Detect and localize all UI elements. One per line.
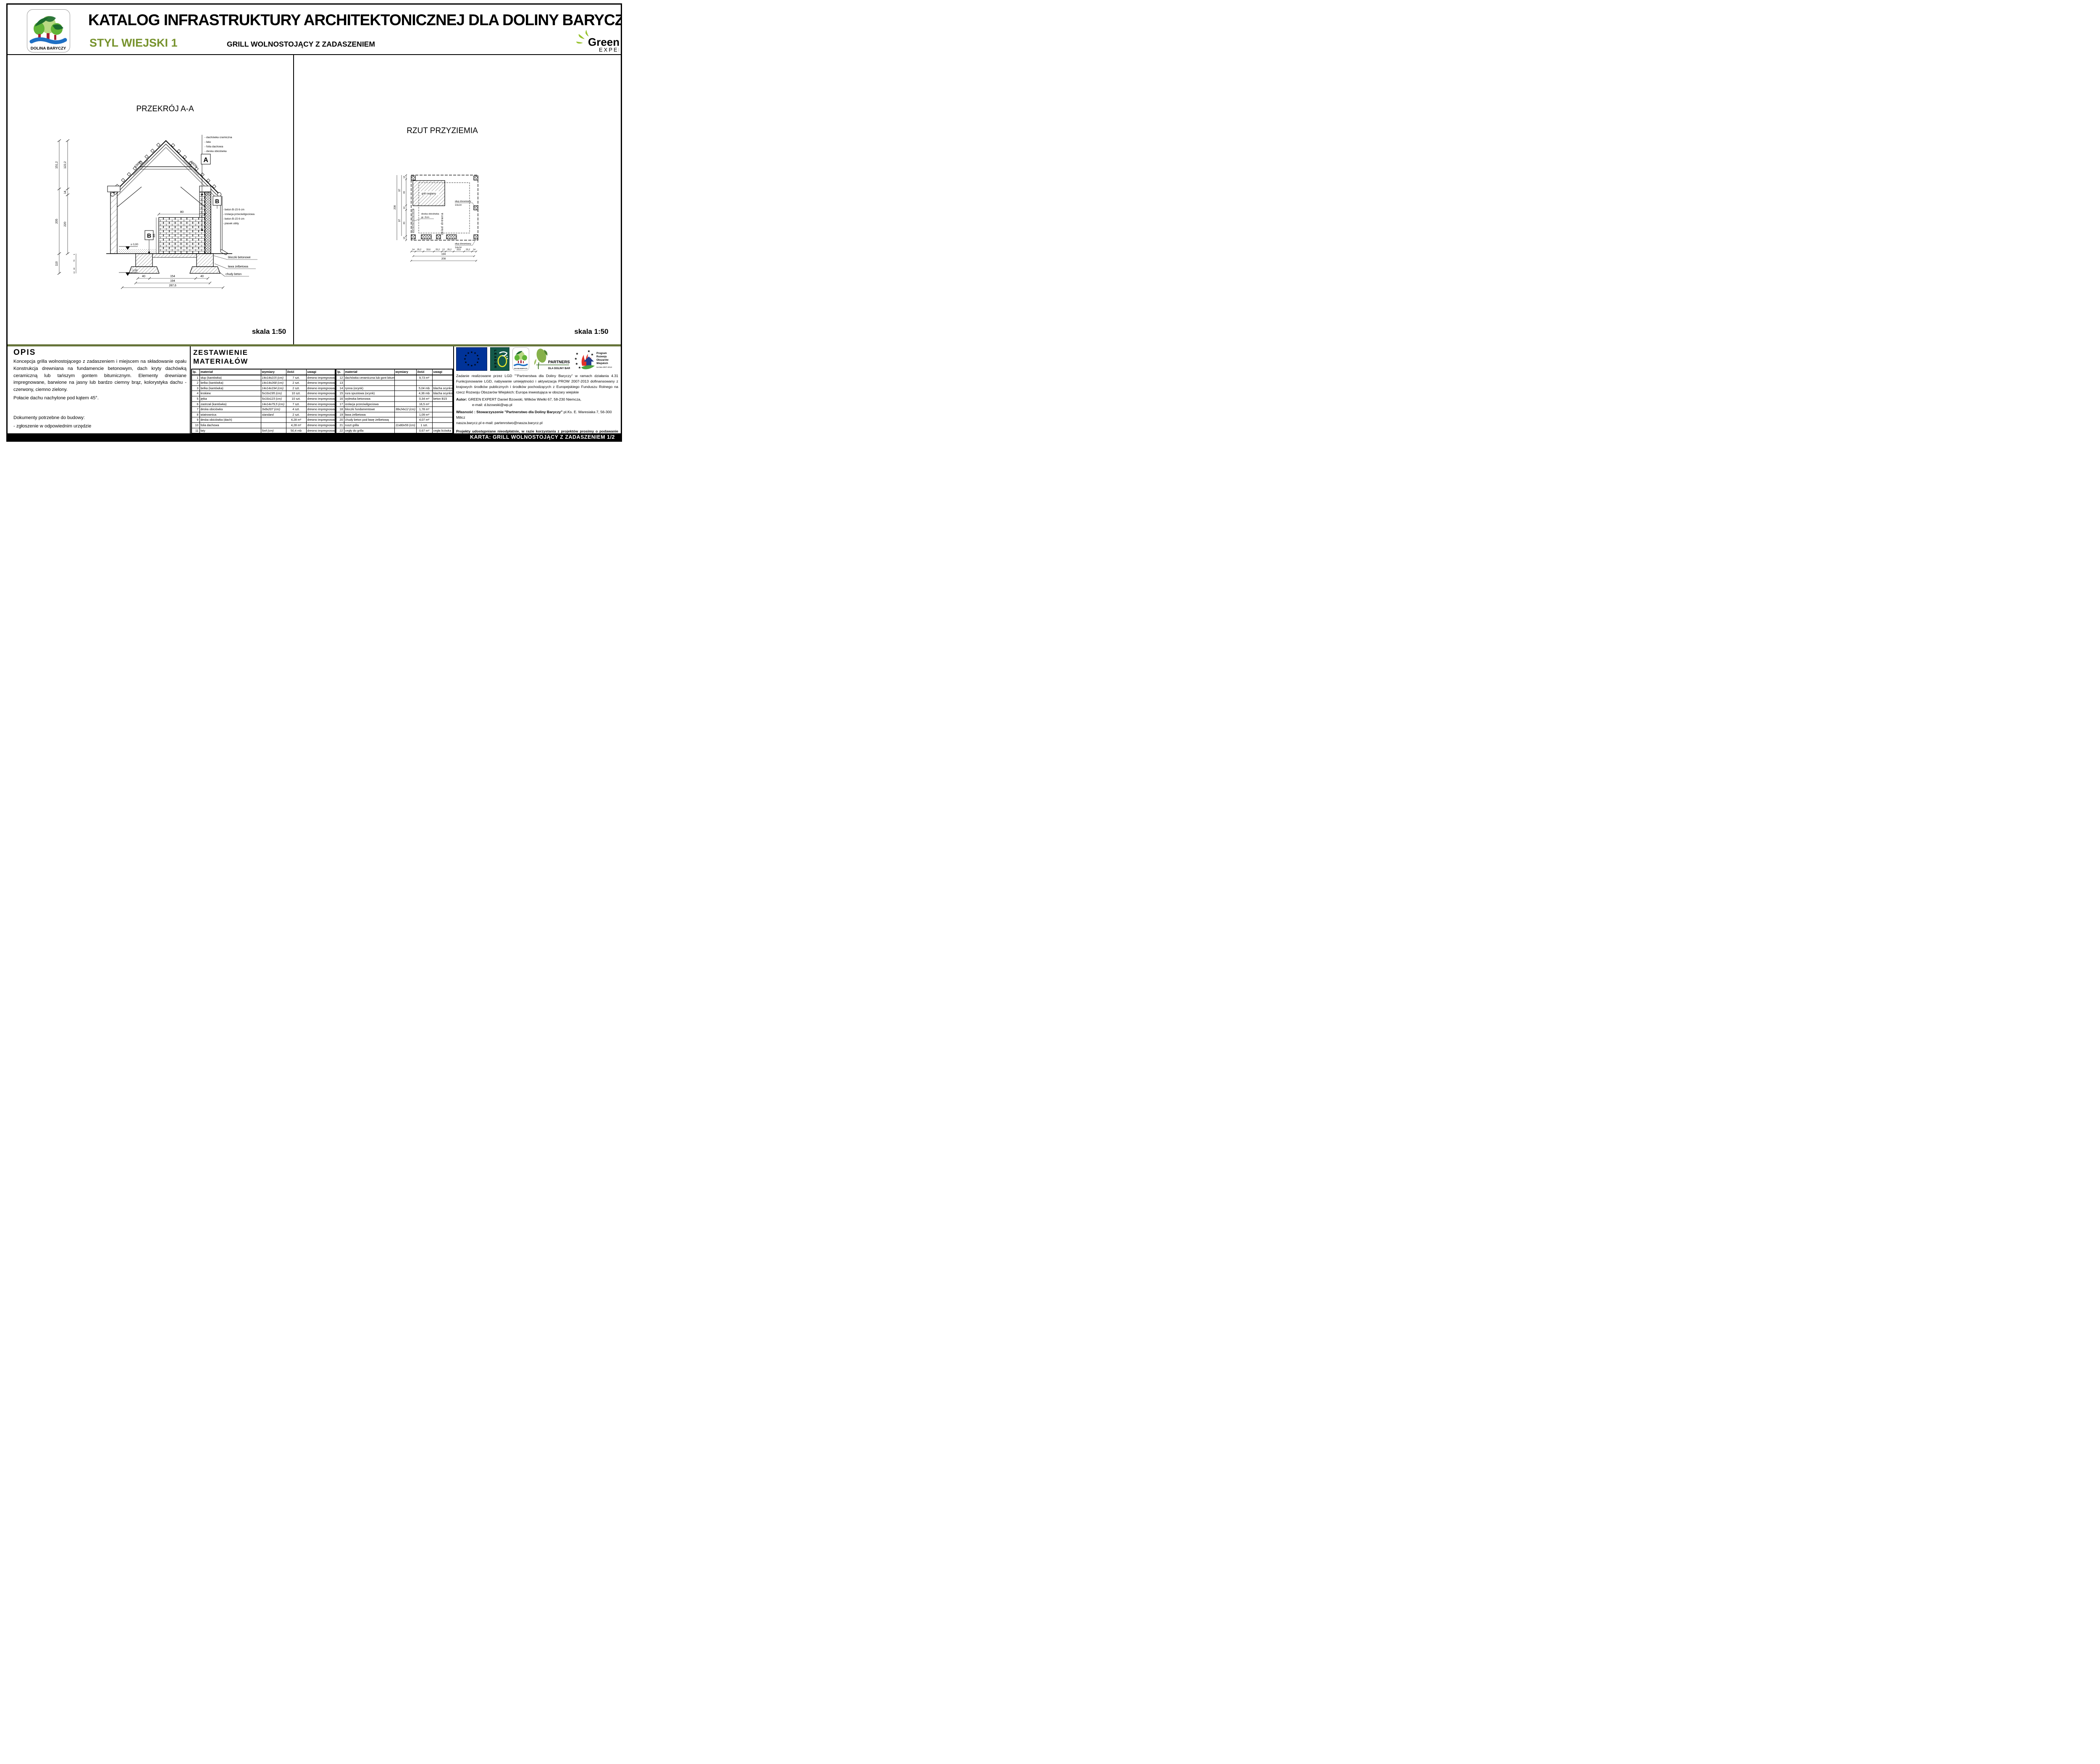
material-row: 13 — [336, 380, 453, 386]
autor-text: GREEN EXPERT Daniel Bzowski, Wilków Wiel… — [468, 397, 581, 401]
table-header-row: lp. materiał wymiary ilość uwagi — [192, 369, 335, 375]
autor-email: e-mail: d.bzowski@wp.pl — [472, 402, 618, 408]
material-cell: 10 szt. — [286, 391, 306, 396]
material-cell: 16 — [336, 396, 344, 401]
dim-label: 97 — [399, 219, 401, 222]
note-a: - deska obiciówka — [205, 150, 227, 153]
material-cell: bloczki fundamentowe — [344, 407, 394, 412]
material-row: 18bloczki fundamentowe38x24x12 (cm)1,78 … — [336, 407, 453, 412]
material-cell: blacha ocynkowana — [432, 385, 453, 391]
material-cell: cegła licówka — [432, 428, 453, 433]
material-cell: 16,5 m² — [416, 401, 432, 407]
plan-drawing: grill ceglany deska obiciówka gr. 2cm sk… — [379, 165, 564, 291]
material-row: 21ruszt grilla11x80x59 (cm)1 szt. — [336, 422, 453, 428]
dim-label: 83 — [403, 222, 406, 224]
svg-text:★: ★ — [587, 349, 590, 353]
material-cell: wylewka betonowa — [344, 396, 394, 401]
material-cell: 14x14x79,5 (cm) — [261, 401, 286, 407]
material-cell: łaty — [199, 428, 261, 433]
material-cell: chudy beton pod ławę żelbetową — [344, 417, 394, 423]
material-cell: 38x24x12 (cm) — [394, 407, 416, 412]
info-zadanie: Zadanie realizowane przez LGD ""Partners… — [456, 373, 618, 395]
material-row: 4krokiew5x16x195 (cm)10 szt.drewno impre… — [192, 391, 335, 396]
opis-divider — [190, 346, 191, 434]
material-row: 2belka (kantówka)14x14x268 (cm)2 szt.dre… — [192, 380, 335, 386]
label-deska: deska obiciówka — [421, 213, 439, 215]
label-sklad: skład drewna — [441, 212, 444, 235]
material-row: 15rura spustowa (ocynk)4,36 mbblacha ocy… — [336, 391, 453, 396]
material-cell: 5,04 mb — [416, 385, 432, 391]
dim-label: 194 — [170, 280, 175, 283]
material-cell: drewno impregnowane — [306, 407, 335, 412]
col-header: wymiary — [394, 369, 416, 375]
material-cell — [432, 417, 453, 423]
leader-text: LEADER — [493, 350, 497, 369]
material-cell: 4,36 mb — [416, 391, 432, 396]
dim-label: 14 — [403, 176, 406, 178]
dim-label: 25,2 — [417, 249, 421, 251]
material-cell: 4 szt. — [286, 407, 306, 412]
note-b: - beton B-15 6 cm — [223, 218, 244, 220]
label-grill: grill ceglany — [422, 192, 436, 195]
material-cell: deska obiciówka — [199, 407, 261, 412]
materials-table-left: lp. materiał wymiary ilość uwagi 1słup (… — [191, 369, 335, 434]
note-b: - beton B-15 6 cm — [223, 208, 244, 211]
dim-label: 70 — [73, 259, 75, 262]
header-divider — [8, 54, 621, 55]
material-row: 22cegły do grilla0,67 m³cegła licówka — [336, 428, 453, 433]
material-cell: ruszt grilla — [344, 422, 394, 428]
material-cell: 0,67 m³ — [416, 428, 432, 433]
material-row: 5jętka5x16x123 (cm)10 szt.drewno impregn… — [192, 396, 335, 401]
partner-logos: ★★★ ★★★ ★★★ ★★★ LEADER DOLINA BARYCZY — [456, 347, 613, 371]
svg-text:★: ★ — [470, 351, 473, 354]
dim-label: 83 — [403, 191, 406, 194]
prow-text: Wiejskich — [596, 362, 608, 365]
plan-title: RZUT PRZYZIEMIA — [402, 126, 482, 136]
leaf-rays-icon — [576, 30, 589, 44]
material-cell: 5 — [192, 396, 199, 401]
material-cell — [394, 428, 416, 433]
note-b: - izolacja przeciwilgociowa — [223, 213, 255, 216]
material-cell: drewno impregnowane — [306, 391, 335, 396]
autor-label: Autor: — [456, 397, 467, 401]
svg-text:★: ★ — [574, 357, 577, 361]
partnerstwo-logo: PARTNERSTWO DLA DOLINY BARYCZY — [532, 347, 570, 371]
dim-label: 85 — [152, 234, 156, 237]
material-cell: wiatrownica — [199, 412, 261, 417]
material-cell: drewno impregnowane — [306, 412, 335, 417]
material-cell: 7 szt. — [286, 375, 306, 380]
material-cell: zastrzał (kantówka) — [199, 401, 261, 407]
material-cell: 10 — [192, 422, 199, 428]
col-header: uwagi — [432, 369, 453, 375]
svg-text:★: ★ — [575, 362, 578, 366]
footer-bar: KARTA: GRILL WOLNOSTOJĄCY Z ZADASZENIEM … — [8, 433, 621, 440]
material-cell: 2 — [192, 380, 199, 386]
prow-text: Program — [596, 352, 607, 355]
material-cell — [394, 380, 416, 386]
dim-label: 14 — [64, 191, 67, 194]
dim-label: 208 — [394, 205, 396, 210]
olive-band — [8, 344, 621, 346]
label-lawa: ława żelbetowa — [228, 265, 248, 268]
dim-label: 14 — [403, 207, 406, 209]
dolina-baryczy-small-logo: DOLINA BARYCZY — [512, 347, 529, 371]
dim-label: 40 — [142, 275, 145, 278]
brand-expert: EXPERT — [599, 47, 619, 53]
col-header: materiał — [344, 369, 394, 375]
scale-label-right: skala 1:50 — [564, 328, 619, 336]
section-marker-a: A — [203, 157, 208, 164]
material-cell: 18 — [336, 407, 344, 412]
material-cell: 3x8x207 (cm) — [261, 407, 286, 412]
material-cell — [432, 412, 453, 417]
material-cell — [432, 422, 453, 428]
partner-line1: PARTNERSTWO — [548, 360, 570, 364]
material-cell: rura spustowa (ocynk) — [344, 391, 394, 396]
material-cell: 4,28 m² — [286, 422, 306, 428]
dim-label: 110 — [55, 261, 58, 266]
material-row: 1słup (kantówka)14x14x215 (cm)7 szt.drew… — [192, 375, 335, 380]
material-cell: 4 — [192, 391, 199, 396]
material-cell: rynna (ocynk) — [344, 385, 394, 391]
material-cell: krokiew — [199, 391, 261, 396]
material-cell: belka (kantówka) — [199, 380, 261, 386]
dim-label: 208 — [441, 257, 446, 260]
dim-label: 33,6 — [426, 249, 430, 251]
materials-table-right: lp. materiał wymiary ilość uwagi 12dachó… — [336, 369, 452, 434]
material-cell: drewno impregnowane — [306, 380, 335, 386]
material-cell: drewno impregnowane — [306, 385, 335, 391]
dim-label: 40 — [200, 275, 204, 278]
material-cell — [432, 380, 453, 386]
roof-tiles — [115, 143, 216, 188]
material-cell — [416, 380, 432, 386]
col-header: lp. — [192, 369, 199, 375]
info-divider — [453, 346, 454, 434]
material-row: 12dachówka ceramiczna lub gont bitumiczn… — [336, 375, 453, 380]
material-cell: 8 — [192, 412, 199, 417]
material-cell: 12 — [336, 375, 344, 380]
svg-text:★: ★ — [578, 366, 581, 370]
material-row: 3belka (kantówka)14x14x194 (cm)2 szt.dre… — [192, 385, 335, 391]
svg-text:★: ★ — [477, 357, 480, 361]
material-cell: 19 — [336, 412, 344, 417]
note-a: - łata — [205, 141, 211, 144]
material-cell: 9,73 m² — [416, 375, 432, 380]
section-drawing: 100% 100% A - dachówka crami — [52, 131, 287, 295]
material-cell: 10 szt. — [286, 396, 306, 401]
opis-heading: OPIS — [13, 348, 36, 357]
material-row: 10folia dachowa4,28 m²drewno impregnowan… — [192, 422, 335, 428]
section-marker-b: B — [215, 198, 219, 204]
dim-label: 122,2 — [64, 161, 67, 169]
materials-heading-line1: ZESTAWIENIE — [193, 348, 248, 357]
material-cell: 20 — [336, 417, 344, 423]
material-cell: 50,4 mb — [286, 428, 306, 433]
prow-text: Obszarów — [596, 359, 609, 362]
material-row: 8wiatrownicastandard2 szt.drewno impregn… — [192, 412, 335, 417]
material-cell: drewno impregnowane — [306, 422, 335, 428]
material-cell: blacha ocynkowana — [432, 391, 453, 396]
page-title: KATALOG INFRASTRUKTURY ARCHITEKTONICZNEJ… — [88, 11, 622, 29]
material-cell: 5x16x123 (cm) — [261, 396, 286, 401]
materials-heading: ZESTAWIENIE MATERIAŁÓW — [193, 348, 248, 366]
material-cell: 6 — [192, 401, 199, 407]
svg-text:★: ★ — [470, 364, 473, 367]
opis-para2: Połacie dachu nachylone pod kątem 45°. — [13, 395, 186, 402]
note-a: - dachówka cramiczna — [205, 136, 232, 139]
material-cell: 5x4 (cm) — [261, 428, 286, 433]
web-line: nasza.barycz.pl e-mail: partenrstwo@nasz… — [456, 420, 618, 426]
material-cell: jętka — [199, 396, 261, 401]
prow-years: na lata 2007-2013 — [596, 366, 612, 368]
material-cell: beton B15 — [432, 396, 453, 401]
material-cell: 9 — [192, 417, 199, 423]
material-cell: 15 — [336, 391, 344, 396]
material-cell — [394, 391, 416, 396]
opis-text: Koncepcja grilla wolnostojącego z zadasz… — [13, 358, 186, 431]
section-title: PRZEKRÓJ A-A — [125, 105, 205, 114]
material-cell: 7 — [192, 407, 199, 412]
dim-label: 151,2 — [55, 161, 58, 169]
material-cell: 14x14x215 (cm) — [261, 375, 286, 380]
dolina-small-caption: DOLINA BARYCZY — [514, 368, 528, 370]
eu-flag-icon: ★★★ ★★★ ★★★ ★★★ — [456, 347, 487, 371]
material-row: 6zastrzał (kantówka)14x14x79,5 (cm)7 szt… — [192, 401, 335, 407]
partner-line2: DLA DOLINY BARYCZY — [548, 367, 570, 370]
material-cell — [432, 401, 453, 407]
dim-label: 220 — [64, 222, 67, 227]
dim-label: 14 — [403, 237, 406, 239]
dolina-baryczy-logo: DOLINA BARYCZY — [26, 9, 71, 53]
dim-label: 97 — [399, 189, 401, 191]
level-zero: ± 0,00 — [131, 243, 138, 246]
label-slup: 14x14 — [455, 204, 462, 207]
svg-text:★: ★ — [476, 361, 479, 364]
col-header: lp. — [336, 369, 344, 375]
material-row: 11łaty5x4 (cm)50,4 mbdrewno impregnowane — [192, 428, 335, 433]
material-cell: drewno impregnowane — [306, 396, 335, 401]
material-cell: 1,09 m³ — [416, 412, 432, 417]
opis-para1: Koncepcja grilla wolnostojącego z zadasz… — [13, 358, 186, 393]
opis-para3: Dokumenty potrzebne do budowy: — [13, 414, 186, 422]
dim-label: 194 — [441, 253, 446, 256]
material-cell: 14x14x194 (cm) — [261, 385, 286, 391]
opis-para4: - zgłoszenie w odpowiednim urzędzie — [13, 423, 186, 430]
material-cell — [394, 401, 416, 407]
dim-label: 10 — [73, 271, 75, 274]
svg-text:★: ★ — [464, 357, 466, 361]
svg-text:★: ★ — [476, 354, 479, 357]
label-bloczki: bloczki betonowe — [228, 256, 251, 259]
svg-text:★: ★ — [474, 363, 476, 367]
label-chudy: chudy beton — [226, 273, 241, 276]
svg-text:★: ★ — [591, 353, 593, 356]
material-cell: 14 — [336, 385, 344, 391]
material-cell: drewno impregnowane — [306, 401, 335, 407]
material-row: 14rynna (ocynk)5,04 mbblacha ocynkowana — [336, 385, 453, 391]
material-cell: 14x14x268 (cm) — [261, 380, 286, 386]
col-header: ilość — [416, 369, 432, 375]
footer-text: KARTA: GRILL WOLNOSTOJĄCY Z ZADASZENIEM … — [470, 434, 615, 440]
material-cell: drewno impregnowane — [306, 428, 335, 433]
panel-divider — [293, 54, 294, 344]
dim-label: 5 — [73, 254, 75, 255]
material-cell: 22 — [336, 428, 344, 433]
material-cell: dachówka ceramiczna lub gont bitumiczny — [344, 375, 394, 380]
material-cell: deska obiciówka (dach) — [199, 417, 261, 423]
material-cell: 1 szt. — [416, 422, 432, 428]
material-cell: folia dachowa — [199, 422, 261, 428]
dim-label: 25,2 — [447, 249, 451, 251]
catalog-page: DOLINA BARYCZY KATALOG INFRASTRUKTURY AR… — [6, 3, 622, 442]
material-cell: belka (kantówka) — [199, 385, 261, 391]
prow-logo: ★★★ ★★★ Program Rozwoju Obszarów Wiejski… — [573, 347, 613, 371]
material-cell — [261, 422, 286, 428]
material-cell: 2 szt. — [286, 380, 306, 386]
svg-text:★: ★ — [467, 351, 470, 355]
dim-label: 25,2 — [436, 249, 440, 251]
label-slup: słup drewniany — [455, 200, 471, 203]
svg-text:★: ★ — [465, 361, 467, 364]
material-cell: ława żelbetowa — [344, 412, 394, 417]
material-cell: cegły do grilla — [344, 428, 394, 433]
col-header: uwagi — [306, 369, 335, 375]
green-expert-logo: Green EXPERT — [575, 29, 619, 53]
note-b: - piasek ubity — [223, 222, 239, 225]
note-a: - folia dachowa — [205, 145, 223, 148]
dim-label: 14 — [207, 192, 210, 194]
material-cell: standard — [261, 412, 286, 417]
material-cell — [394, 375, 416, 380]
material-cell: 2 szt. — [286, 385, 306, 391]
material-cell: izolacja przeciwilgociowa — [344, 401, 394, 407]
material-cell: 1,78 m³ — [416, 407, 432, 412]
material-cell: 5x16x195 (cm) — [261, 391, 286, 396]
label-deska: gr. 2cm — [421, 216, 429, 219]
table-header-row: lp. materiał wymiary ilość uwagi — [336, 369, 453, 375]
scale-label-left: skala 1:50 — [243, 328, 295, 336]
dim-label: 33,6 — [457, 249, 461, 251]
dim-label: 205 — [55, 219, 58, 224]
svg-text:★: ★ — [467, 363, 470, 367]
material-cell — [344, 380, 394, 386]
section-marker-b: B — [147, 232, 151, 239]
material-cell: 0,34 m³ — [416, 396, 432, 401]
material-cell — [394, 396, 416, 401]
material-cell — [432, 375, 453, 380]
level-minus: - 1,00 — [131, 269, 138, 272]
material-row: 17izolacja przeciwilgociowa16,5 m² — [336, 401, 453, 407]
material-row: 9deska obiciówka (dach)4,28 m²drewno imp… — [192, 417, 335, 423]
info-block: Zadanie realizowane przez LGD ""Partners… — [456, 373, 618, 442]
material-cell: 3 — [192, 385, 199, 391]
logo-caption: DOLINA BARYCZY — [31, 46, 66, 51]
material-cell — [394, 412, 416, 417]
leader-logo: LEADER — [490, 347, 509, 371]
material-cell: 11 — [192, 428, 199, 433]
dim-label: 80 — [180, 210, 184, 214]
material-row: 20chudy beton pod ławę żelbetową4,07 m² — [336, 417, 453, 423]
material-cell: 1 — [192, 375, 199, 380]
material-row: 7deska obiciówka3x8x207 (cm)4 szt.drewno… — [192, 407, 335, 412]
material-cell: 2 szt. — [286, 412, 306, 417]
dim-label: 14 — [412, 249, 415, 251]
materials-heading-line2: MATERIAŁÓW — [193, 357, 248, 366]
col-header: wymiary — [261, 369, 286, 375]
material-cell — [394, 385, 416, 391]
dim-label: 287,6 — [169, 284, 176, 287]
material-cell — [261, 417, 286, 423]
prow-text: Rozwoju — [596, 356, 607, 358]
card-subtitle: GRILL WOLNOSTOJĄCY Z ZADASZENIEM — [227, 40, 375, 49]
material-cell: słup (kantówka) — [199, 375, 261, 380]
style-label: STYL WIEJSKI 1 — [89, 37, 178, 50]
material-cell: 17 — [336, 401, 344, 407]
dim-label: 30 — [73, 267, 75, 270]
dim-label: 12 — [442, 249, 445, 251]
material-cell: drewno impregnowane — [306, 375, 335, 380]
material-cell — [394, 417, 416, 423]
dim-label: 154 — [170, 275, 175, 278]
material-row: 16wylewka betonowa0,34 m³beton B15 — [336, 396, 453, 401]
material-cell: 11x80x59 (cm) — [394, 422, 416, 428]
col-header: ilość — [286, 369, 306, 375]
dim-label: 14 — [473, 249, 475, 251]
dim-label: 25,2 — [466, 249, 470, 251]
material-cell — [432, 407, 453, 412]
material-cell: 4,07 m² — [416, 417, 432, 423]
material-cell: 7 szt. — [286, 401, 306, 407]
col-header: materiał — [199, 369, 261, 375]
material-cell: 21 — [336, 422, 344, 428]
svg-text:★: ★ — [575, 352, 578, 356]
material-cell: 13 — [336, 380, 344, 386]
material-cell: 4,28 m² — [286, 417, 306, 423]
material-cell: drewno impregnowane — [306, 417, 335, 423]
material-row: 19ława żelbetowa1,09 m³ — [336, 412, 453, 417]
label-slup: słup drewniany — [455, 243, 471, 245]
wlasnosc-label: Własność : Stowarzyszenie "Partnerstwo d… — [456, 410, 563, 414]
